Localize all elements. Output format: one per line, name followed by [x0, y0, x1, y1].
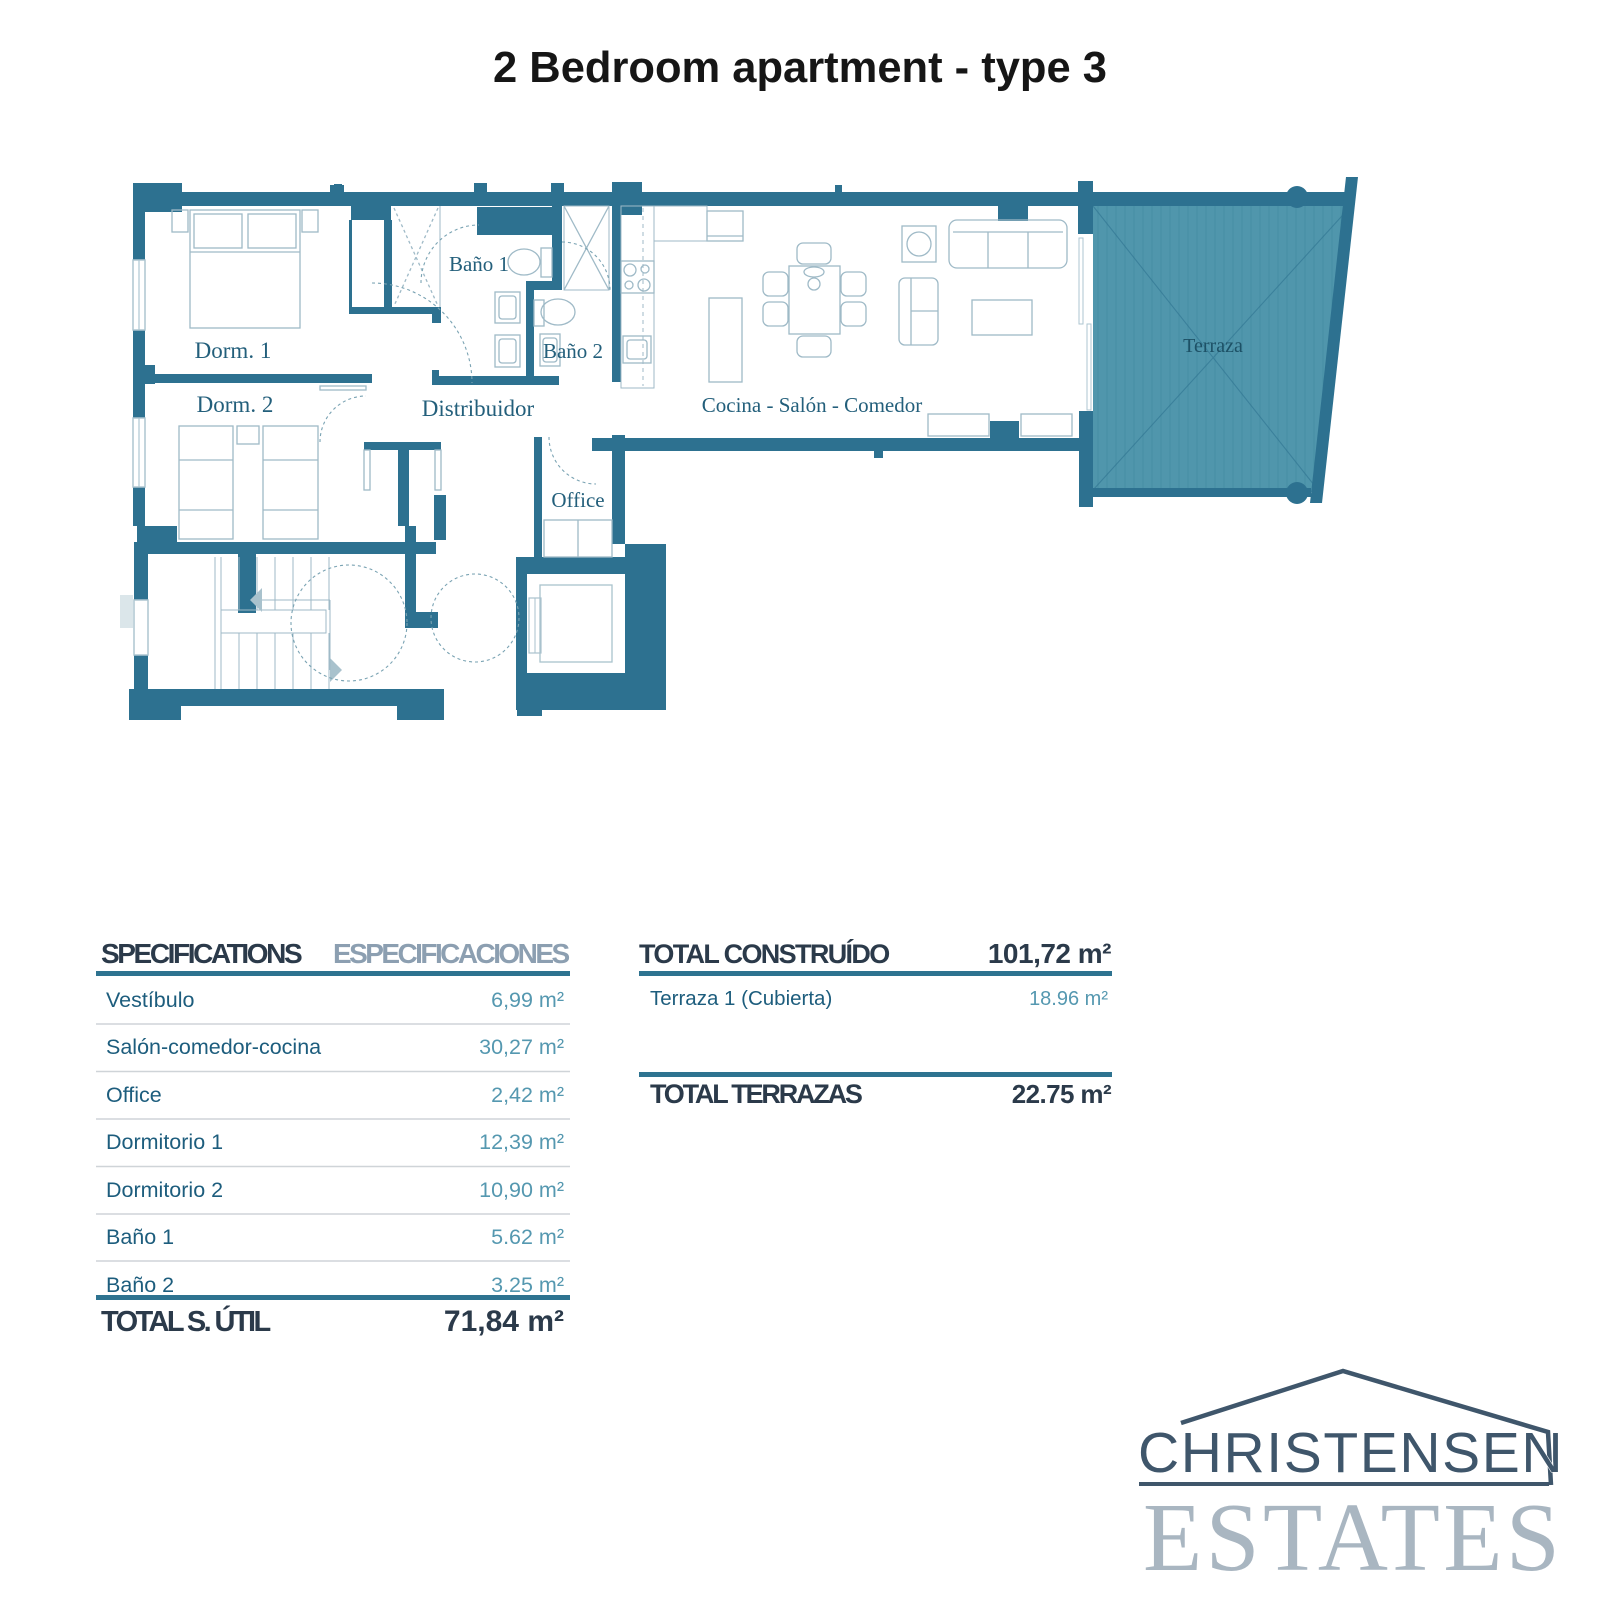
- svg-text:2 Bedroom apartment - type 3: 2 Bedroom apartment - type 3: [493, 44, 1107, 92]
- svg-text:6,99 m²: 6,99 m²: [491, 988, 564, 1012]
- svg-text:CHRISTENSEN: CHRISTENSEN: [1138, 1421, 1564, 1485]
- svg-text:Distribuidor: Distribuidor: [422, 396, 535, 421]
- svg-text:Office: Office: [106, 1083, 162, 1107]
- svg-text:SPECIFICATIONS: SPECIFICATIONS: [101, 938, 302, 969]
- svg-text:Baño 1: Baño 1: [106, 1225, 174, 1249]
- svg-text:ESTATES: ESTATES: [1143, 1484, 1563, 1591]
- svg-text:Baño 1: Baño 1: [449, 252, 509, 276]
- svg-text:Cocina - Salón - Comedor: Cocina - Salón - Comedor: [702, 393, 922, 417]
- svg-text:22.75 m²: 22.75 m²: [1012, 1079, 1112, 1109]
- svg-text:ESPECIFICACIONES: ESPECIFICACIONES: [333, 938, 569, 969]
- svg-text:5.62 m²: 5.62 m²: [491, 1225, 564, 1249]
- svg-text:Office: Office: [551, 488, 604, 512]
- svg-text:12,39 m²: 12,39 m²: [479, 1130, 564, 1154]
- svg-text:18.96 m²: 18.96 m²: [1029, 988, 1108, 1010]
- svg-text:Dorm. 2: Dorm. 2: [197, 392, 274, 417]
- svg-text:71,84 m²: 71,84 m²: [444, 1305, 564, 1338]
- svg-text:Dormitorio 2: Dormitorio 2: [106, 1178, 223, 1202]
- svg-text:Baño 2: Baño 2: [106, 1273, 174, 1297]
- svg-text:Vestíbulo: Vestíbulo: [106, 988, 194, 1012]
- svg-text:TOTAL CONSTRUÍDO: TOTAL CONSTRUÍDO: [639, 938, 889, 969]
- svg-text:TOTAL TERRAZAS: TOTAL TERRAZAS: [650, 1079, 862, 1109]
- svg-text:10,90 m²: 10,90 m²: [479, 1178, 564, 1202]
- svg-text:Terraza: Terraza: [1183, 335, 1243, 357]
- svg-text:30,27 m²: 30,27 m²: [479, 1035, 564, 1059]
- svg-text:Baño 2: Baño 2: [543, 339, 603, 363]
- svg-text:101,72 m²: 101,72 m²: [988, 938, 1111, 969]
- svg-text:3.25 m²: 3.25 m²: [491, 1273, 564, 1297]
- svg-text:Salón-comedor-cocina: Salón-comedor-cocina: [106, 1035, 321, 1059]
- svg-text:Dormitorio 1: Dormitorio 1: [106, 1130, 223, 1154]
- svg-text:TOTAL S. ÚTIL: TOTAL S. ÚTIL: [101, 1304, 270, 1338]
- svg-text:2,42 m²: 2,42 m²: [491, 1083, 564, 1107]
- svg-text:Dorm. 1: Dorm. 1: [195, 338, 272, 363]
- svg-text:Terraza 1 (Cubierta): Terraza 1 (Cubierta): [650, 987, 832, 1010]
